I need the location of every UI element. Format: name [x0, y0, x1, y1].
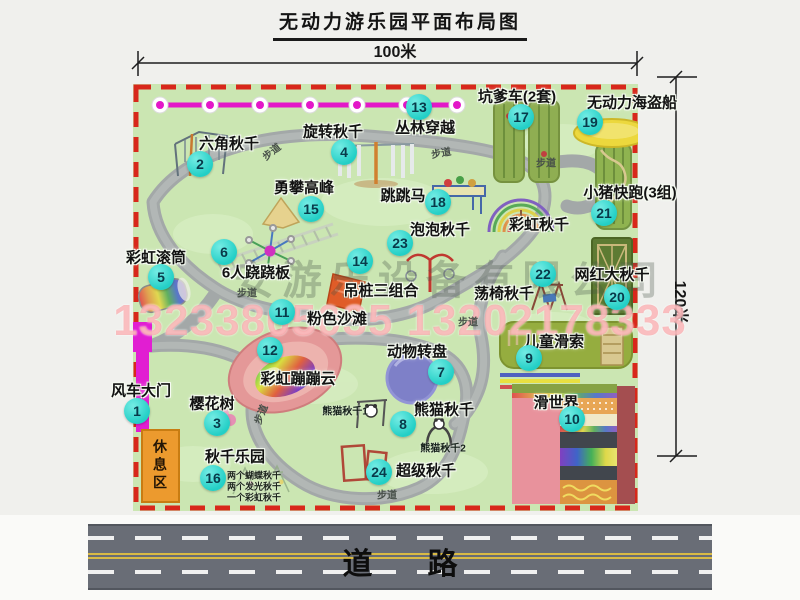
watermark-phone: 13233805035 13202178333 [0, 296, 800, 346]
road: 道路 [88, 524, 712, 590]
piggy-run-icon [596, 143, 631, 229]
rest-area-box [142, 430, 179, 502]
pirate-ship-icon [574, 119, 638, 147]
width-dimension-label: 100米 [350, 38, 440, 62]
page-title-text: 无动力游乐园平面布局图 [273, 7, 527, 41]
page-background: 无动力游乐园平面布局图 [0, 0, 800, 600]
slide-world-icon [500, 373, 635, 504]
page-title: 无动力游乐园平面布局图 [0, 7, 800, 41]
animal-turntable-icon [387, 353, 437, 403]
road-label: 道路 [88, 539, 712, 583]
